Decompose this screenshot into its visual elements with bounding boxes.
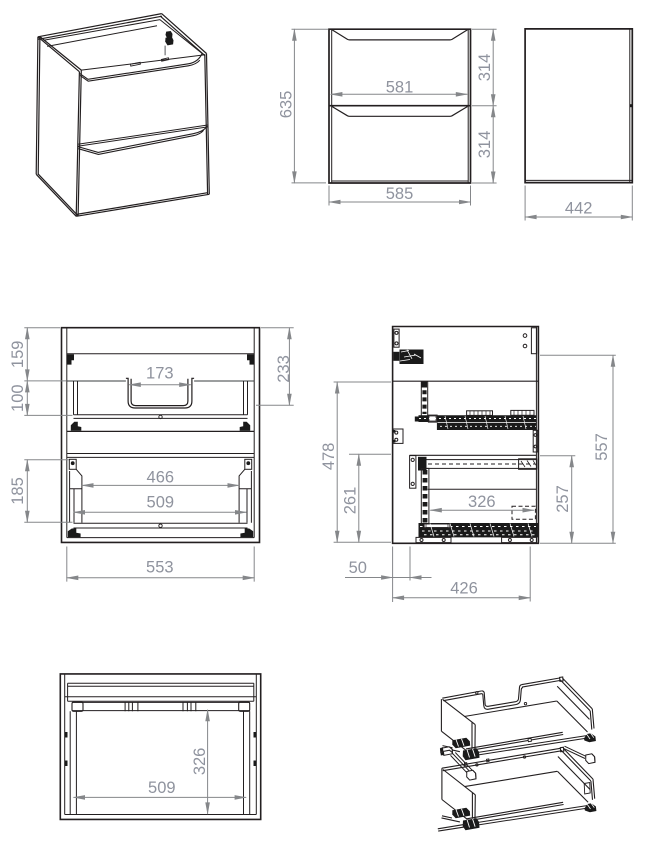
svg-text:466: 466 bbox=[147, 468, 175, 486]
svg-text:314: 314 bbox=[476, 131, 494, 159]
svg-text:635: 635 bbox=[277, 91, 295, 119]
svg-text:442: 442 bbox=[565, 200, 593, 218]
svg-text:509: 509 bbox=[148, 779, 176, 797]
svg-text:478: 478 bbox=[320, 443, 338, 471]
svg-text:50: 50 bbox=[349, 559, 367, 577]
svg-text:553: 553 bbox=[146, 559, 174, 577]
svg-text:173: 173 bbox=[146, 364, 174, 382]
svg-text:261: 261 bbox=[341, 487, 359, 515]
svg-text:185: 185 bbox=[9, 477, 27, 505]
svg-text:326: 326 bbox=[468, 493, 496, 511]
svg-text:581: 581 bbox=[386, 78, 414, 96]
svg-text:314: 314 bbox=[476, 54, 494, 82]
svg-text:426: 426 bbox=[450, 579, 478, 597]
svg-text:326: 326 bbox=[191, 748, 209, 776]
svg-text:557: 557 bbox=[593, 433, 611, 461]
svg-text:257: 257 bbox=[554, 485, 572, 513]
svg-text:100: 100 bbox=[9, 384, 27, 412]
svg-text:159: 159 bbox=[9, 341, 27, 369]
svg-text:585: 585 bbox=[386, 185, 414, 203]
svg-text:233: 233 bbox=[275, 355, 293, 383]
svg-text:509: 509 bbox=[147, 494, 175, 512]
